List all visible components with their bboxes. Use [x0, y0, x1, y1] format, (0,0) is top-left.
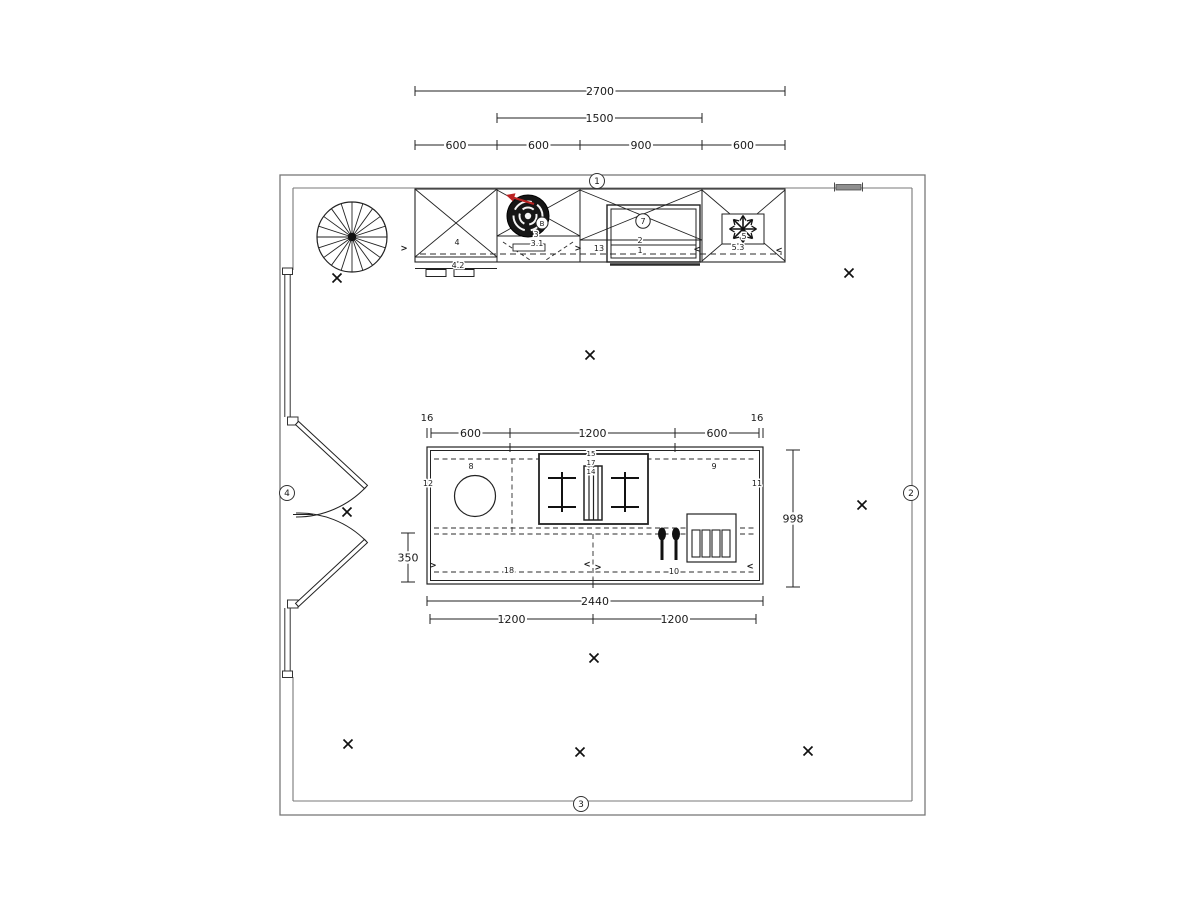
plate-rack-icon [687, 514, 736, 562]
part-label: 12 [423, 479, 433, 488]
rack-slot [712, 530, 720, 557]
wall-recess-marking [836, 185, 861, 191]
swing-arrow-glyph: < [746, 562, 753, 572]
wall-marker-label: 4 [284, 489, 290, 499]
dimension-label: 600 [528, 139, 549, 152]
swing-arrow-glyph: > [429, 561, 436, 571]
swing-arrow-glyph: > [594, 563, 601, 573]
part-label: 18 [504, 566, 514, 575]
part-label: 2 [637, 236, 642, 245]
overhang-label: 16 [751, 413, 764, 424]
part-label: 15 [587, 450, 596, 458]
dimension-label: 900 [631, 139, 652, 152]
dimension-label: 600 [733, 139, 754, 152]
rack-slot [692, 530, 700, 557]
part-label: 17 [587, 459, 596, 467]
dimension-label: 600 [707, 427, 728, 440]
sink-icon [455, 476, 496, 517]
floor-plan-page: 2700150060060090060060012006002440120012… [0, 0, 1200, 900]
dimension-label: 600 [460, 427, 481, 440]
part-label: 1 [637, 246, 642, 255]
spiral-staircase-icon [317, 202, 387, 272]
part-label: 7 [640, 217, 645, 226]
spoon-handle [675, 539, 678, 560]
rack-slot [702, 530, 710, 557]
rack-slot [722, 530, 730, 557]
part-label: B [540, 220, 545, 228]
spoon-handle [661, 539, 664, 560]
part-label: 4.2 [452, 261, 465, 270]
dimension-label: 1500 [586, 112, 614, 125]
wall-marker-label: 2 [908, 489, 914, 499]
part-label: 14 [587, 468, 596, 476]
spoon-head [672, 528, 680, 541]
swing-arrow-glyph: < [583, 560, 590, 570]
overhang-label: 16 [421, 413, 434, 424]
swing-arrow-glyph: > [400, 244, 407, 254]
wall-marker-label: 3 [578, 800, 584, 810]
panel-cap [283, 268, 293, 275]
part-label: 4 [454, 238, 459, 247]
part-label: 13 [594, 244, 604, 253]
floor-plan-canvas: 2700150060060090060060012006002440120012… [0, 0, 1200, 900]
part-label: 11 [752, 479, 762, 488]
dimension-label: 2700 [586, 85, 614, 98]
dimension-label: 2440 [581, 595, 609, 608]
swing-arrow-glyph: > [574, 244, 581, 254]
boiler-center [525, 213, 531, 219]
dimension-label: 1200 [498, 613, 526, 626]
part-label: 5.3 [732, 243, 745, 252]
wall-marker-label: 1 [594, 177, 600, 187]
part-label: 10 [669, 567, 679, 576]
part-label: 8 [468, 462, 473, 471]
dimension-label: 998 [783, 513, 804, 526]
staircase-center-post [348, 233, 356, 241]
part-label: 3.1 [531, 239, 544, 248]
spoon-head [658, 528, 666, 541]
dimension-label: 1200 [579, 427, 607, 440]
part-label: 3 [533, 230, 538, 239]
swing-arrow-glyph: < [693, 245, 700, 255]
part-label: 5 [741, 232, 746, 241]
swing-arrow-glyph: < [775, 246, 782, 256]
panel-cap [283, 671, 293, 678]
dimension-label: 350 [398, 552, 419, 565]
dimension-label: 1200 [661, 613, 689, 626]
part-label: 9 [711, 462, 716, 471]
dimension-label: 600 [446, 139, 467, 152]
